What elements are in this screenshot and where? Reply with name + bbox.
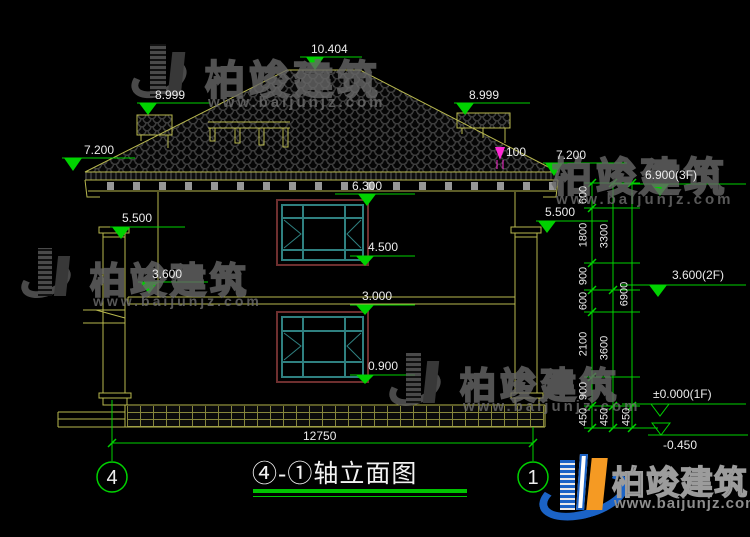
detail-100-label: 100 bbox=[506, 146, 526, 158]
watermark-logo-icon bbox=[20, 246, 86, 312]
elev-win1-sill: 0.900 bbox=[368, 360, 398, 372]
dim-inner-900b: 900 bbox=[579, 382, 590, 400]
dim-inner-900a: 900 bbox=[579, 267, 590, 285]
title-underline bbox=[253, 489, 467, 493]
watermark-logo-icon bbox=[388, 350, 456, 418]
dim-inner-600a: 600 bbox=[579, 186, 590, 204]
dim-outer-6900: 6900 bbox=[620, 282, 631, 306]
elev-ridge-label: 10.404 bbox=[311, 43, 348, 55]
dim-mid-3300: 3300 bbox=[600, 224, 611, 248]
dim-mid-3600: 3600 bbox=[600, 336, 611, 360]
casement-opening-lines bbox=[284, 220, 361, 360]
site-logo-url: www.baijunjz.com bbox=[614, 495, 750, 512]
dim-inner-1800: 1800 bbox=[579, 223, 590, 247]
floor-marker-1f: ±0.000(1F) bbox=[653, 388, 712, 400]
floor-marker-2f: 3.600(2F) bbox=[672, 269, 724, 281]
drawing-title: ④-①轴立面图 bbox=[252, 454, 417, 490]
watermark-url: www.baijunjz.com bbox=[208, 94, 385, 111]
dim-inner-2100: 2100 bbox=[579, 332, 590, 356]
watermark: 柏竣建筑 www.baijunjz.com bbox=[130, 40, 390, 118]
floor-marker-3f: 6.900(3F) bbox=[645, 169, 697, 181]
dim-inner-600b: 600 bbox=[579, 292, 590, 310]
watermark-url: www.baijunjz.com bbox=[463, 398, 640, 415]
dim-inner-450: 450 bbox=[579, 408, 590, 426]
elev-eave-right: 7.200 bbox=[556, 149, 586, 161]
overall-width-dim: 12750 bbox=[303, 430, 336, 442]
title-underline-thin bbox=[253, 496, 467, 497]
elev-capital-right: 5.500 bbox=[545, 206, 575, 218]
axis-bubble-4: 4 bbox=[97, 467, 127, 490]
dim-mid-450: 450 bbox=[600, 408, 611, 426]
dim-outer-450: 450 bbox=[622, 408, 633, 426]
elev-win2-sill: 4.500 bbox=[368, 241, 398, 253]
site-logo: 柏竣建筑 www.baijunjz.com bbox=[536, 452, 750, 537]
watermark-url: www.baijunjz.com bbox=[93, 293, 262, 309]
elev-eave-right-upper: 8.999 bbox=[469, 89, 499, 101]
cad-elevation-drawing: 10.404 8.999 8.999 7.200 7.200 5.500 5.5… bbox=[0, 0, 750, 537]
elev-floor2-left: 3.600 bbox=[152, 268, 182, 280]
elev-eave-left: 7.200 bbox=[84, 144, 114, 156]
elev-floor2-slab: 3.000 bbox=[362, 290, 392, 302]
watermark: 柏竣建筑 www.baijunjz.com bbox=[20, 246, 270, 310]
elev-win2-top: 6.300 bbox=[352, 180, 382, 192]
elev-capital-left: 5.500 bbox=[122, 212, 152, 224]
elev-eave-left-upper: 8.999 bbox=[155, 89, 185, 101]
magenta-section-marker bbox=[495, 147, 505, 169]
logo-tower-blue bbox=[560, 460, 575, 510]
floor-marker-ground: -0.450 bbox=[663, 439, 697, 451]
